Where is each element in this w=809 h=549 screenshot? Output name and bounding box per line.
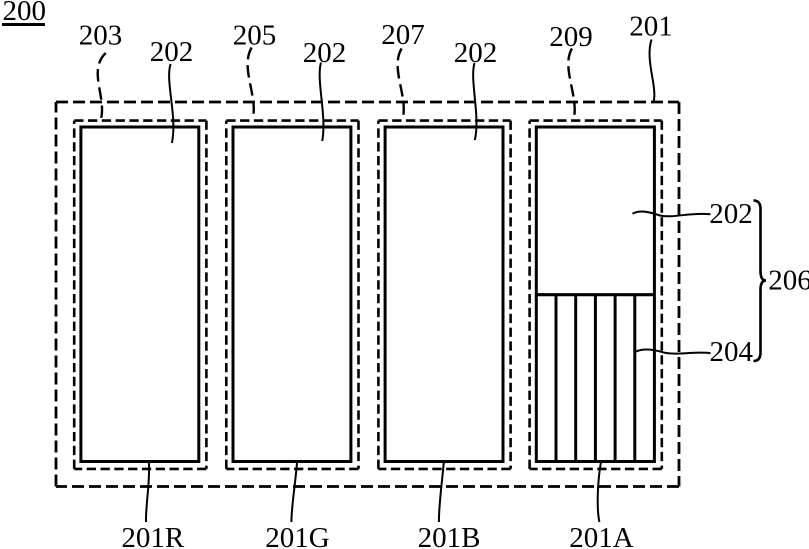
svg-text:202: 202 [303, 37, 347, 69]
svg-text:207: 207 [381, 19, 425, 51]
svg-text:201R: 201R [121, 522, 185, 549]
svg-text:206: 206 [768, 265, 809, 297]
svg-text:204: 204 [710, 336, 754, 368]
svg-text:200: 200 [3, 0, 47, 27]
svg-text:203: 203 [79, 20, 123, 52]
svg-text:201G: 201G [265, 522, 330, 549]
svg-text:202: 202 [454, 37, 498, 69]
svg-text:201: 201 [629, 11, 673, 43]
svg-text:202: 202 [150, 36, 194, 68]
svg-text:202: 202 [709, 198, 753, 230]
svg-text:201B: 201B [418, 522, 481, 549]
svg-text:205: 205 [233, 20, 277, 52]
svg-text:201A: 201A [569, 522, 634, 549]
